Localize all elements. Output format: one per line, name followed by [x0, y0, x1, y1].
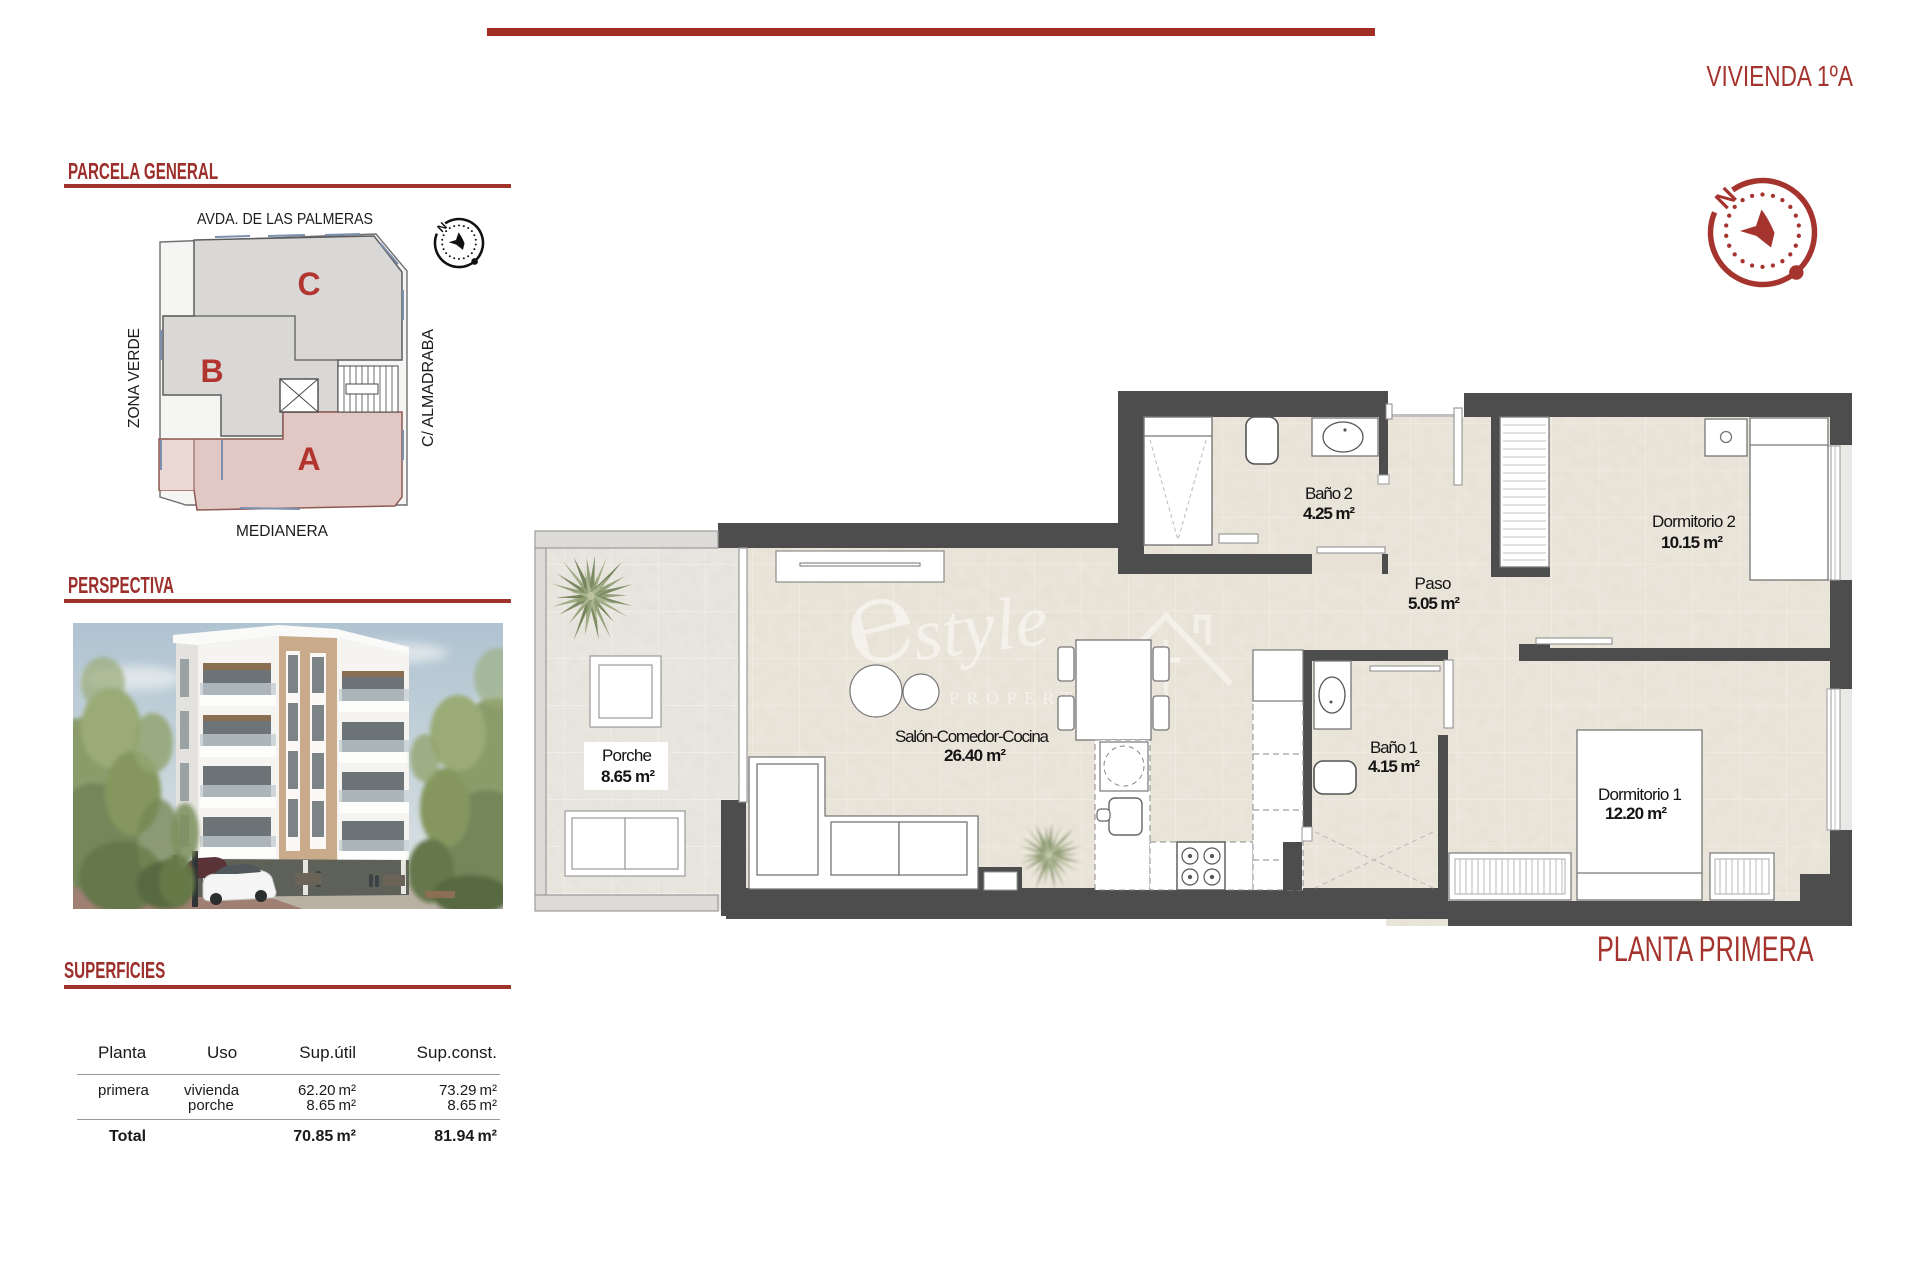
svg-text:style: style [908, 579, 1053, 677]
svg-text:4.25 m²: 4.25 m² [1303, 504, 1355, 523]
svg-text:26.40 m²: 26.40 m² [944, 746, 1006, 765]
svg-text:B: B [200, 353, 223, 389]
svg-text:5.05 m²: 5.05 m² [1408, 594, 1460, 613]
svg-text:ZONA VERDE: ZONA VERDE [126, 328, 143, 428]
svg-text:C/ ALMADRABA: C/ ALMADRABA [420, 329, 437, 447]
svg-text:Baño 1: Baño 1 [1370, 738, 1418, 757]
svg-text:4.15 m²: 4.15 m² [1368, 757, 1420, 776]
svg-text:MEDIANERA: MEDIANERA [236, 523, 328, 540]
svg-text:Baño 2: Baño 2 [1305, 484, 1353, 503]
svg-text:8.65 m²: 8.65 m² [601, 767, 655, 786]
svg-text:AVDA. DE LAS PALMERAS: AVDA. DE LAS PALMERAS [197, 211, 373, 228]
svg-text:Paso: Paso [1415, 574, 1452, 593]
svg-text:Salón-Comedor-Cocina: Salón-Comedor-Cocina [895, 727, 1050, 746]
svg-text:12.20 m²: 12.20 m² [1605, 804, 1667, 823]
svg-text:Porche: Porche [602, 746, 652, 765]
svg-text:C: C [297, 266, 320, 302]
svg-text:Dormitorio 1: Dormitorio 1 [1598, 785, 1682, 804]
svg-text:10.15 m²: 10.15 m² [1661, 533, 1723, 552]
svg-text:A: A [297, 441, 320, 477]
svg-text:Dormitorio 2: Dormitorio 2 [1652, 512, 1736, 531]
